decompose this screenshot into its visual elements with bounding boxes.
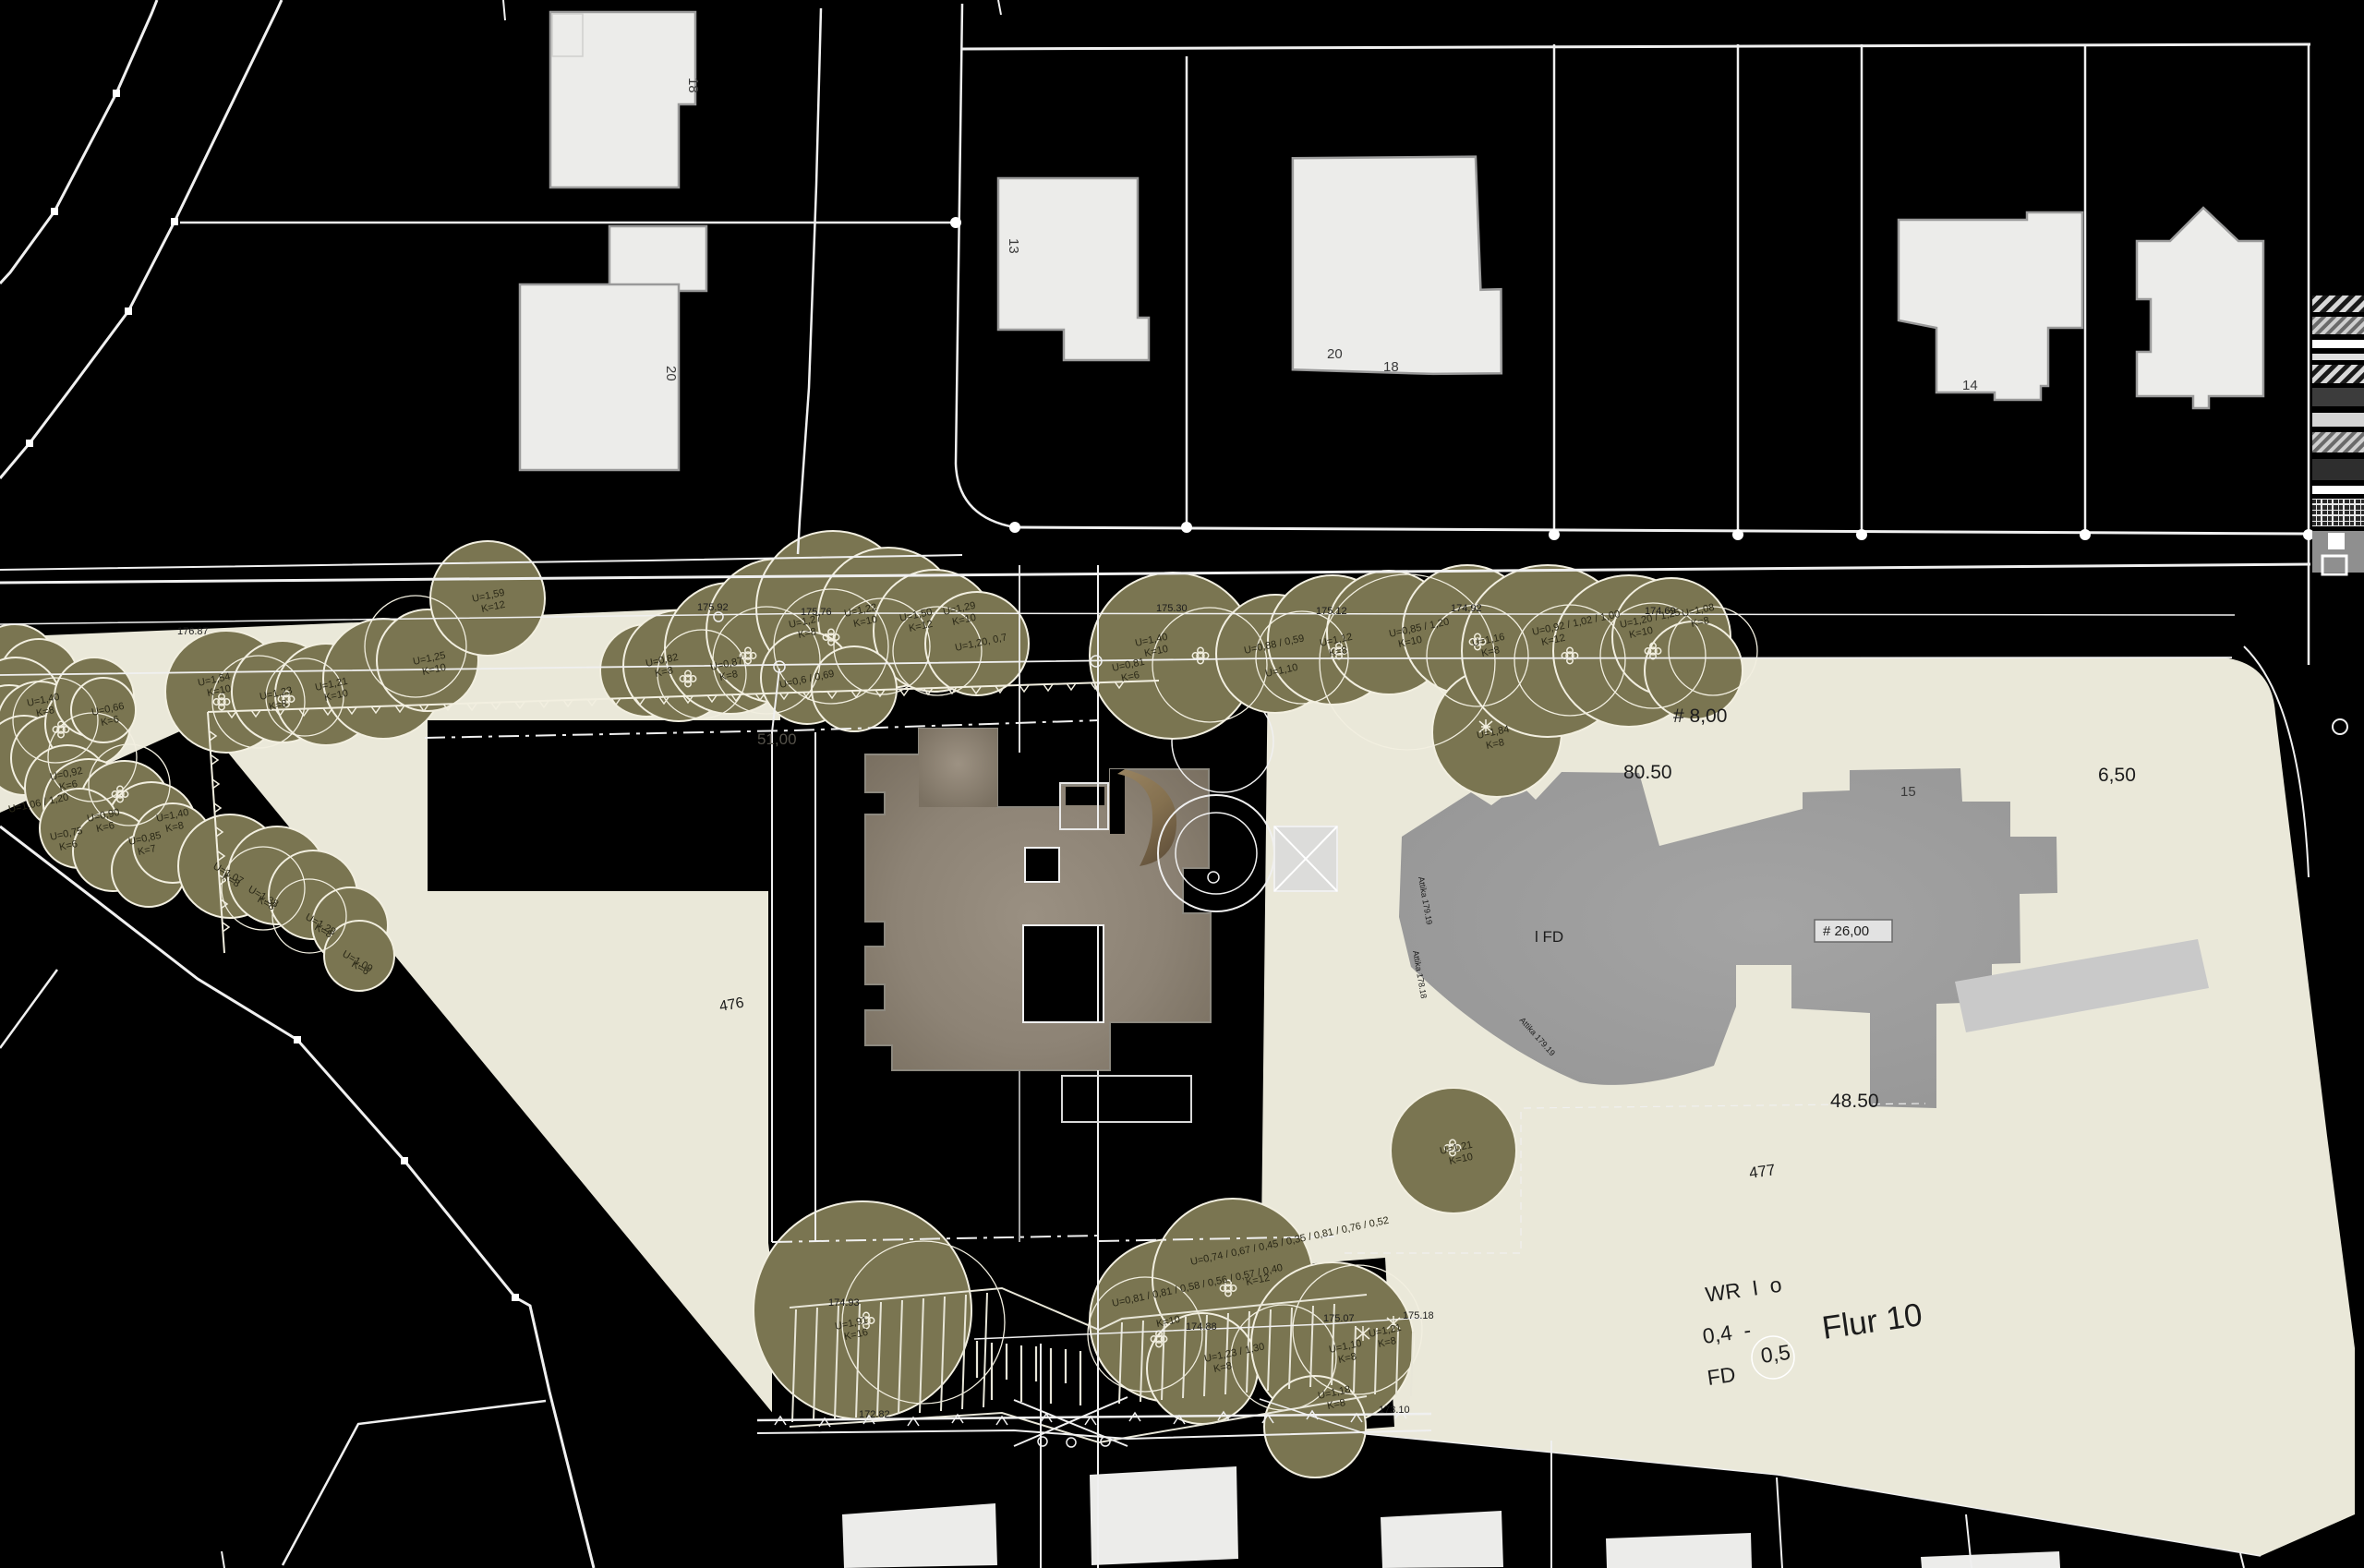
svg-text:175.12: 175.12 [1316, 606, 1347, 617]
svg-text:175.07: 175.07 [1323, 1313, 1355, 1324]
svg-text:48.50: 48.50 [1830, 1091, 1879, 1112]
svg-text:0,5: 0,5 [1759, 1340, 1791, 1368]
svg-text:18: 18 [685, 78, 701, 93]
svg-text:477: 477 [1748, 1161, 1777, 1182]
svg-text:18: 18 [1383, 359, 1399, 375]
svg-text:175.92: 175.92 [697, 602, 729, 613]
svg-text:20: 20 [1327, 346, 1343, 362]
svg-text:176.87: 176.87 [177, 626, 209, 637]
svg-text:# 26,00: # 26,00 [1823, 923, 1869, 939]
svg-text:14: 14 [1962, 378, 1978, 393]
svg-text:174.93: 174.93 [828, 1297, 860, 1309]
svg-text:173.10: 173.10 [1379, 1405, 1410, 1416]
svg-text:6,50: 6,50 [2098, 765, 2136, 786]
svg-text:20: 20 [663, 366, 679, 381]
svg-text:174.92: 174.92 [1451, 603, 1482, 614]
svg-text:80.50: 80.50 [1623, 762, 1672, 783]
svg-text:# 8,00: # 8,00 [1673, 706, 1727, 727]
svg-text:175.30: 175.30 [1156, 603, 1188, 614]
svg-text:174.88: 174.88 [1186, 1321, 1217, 1333]
svg-text:175.18: 175.18 [1403, 1310, 1434, 1321]
svg-text:FD: FD [1706, 1362, 1737, 1390]
svg-text:13: 13 [1006, 238, 1021, 254]
svg-text:15: 15 [1900, 784, 1916, 800]
svg-text:l FD: l FD [1535, 928, 1563, 946]
svg-text:172.82: 172.82 [859, 1409, 890, 1420]
svg-text:51,00: 51,00 [757, 730, 797, 748]
